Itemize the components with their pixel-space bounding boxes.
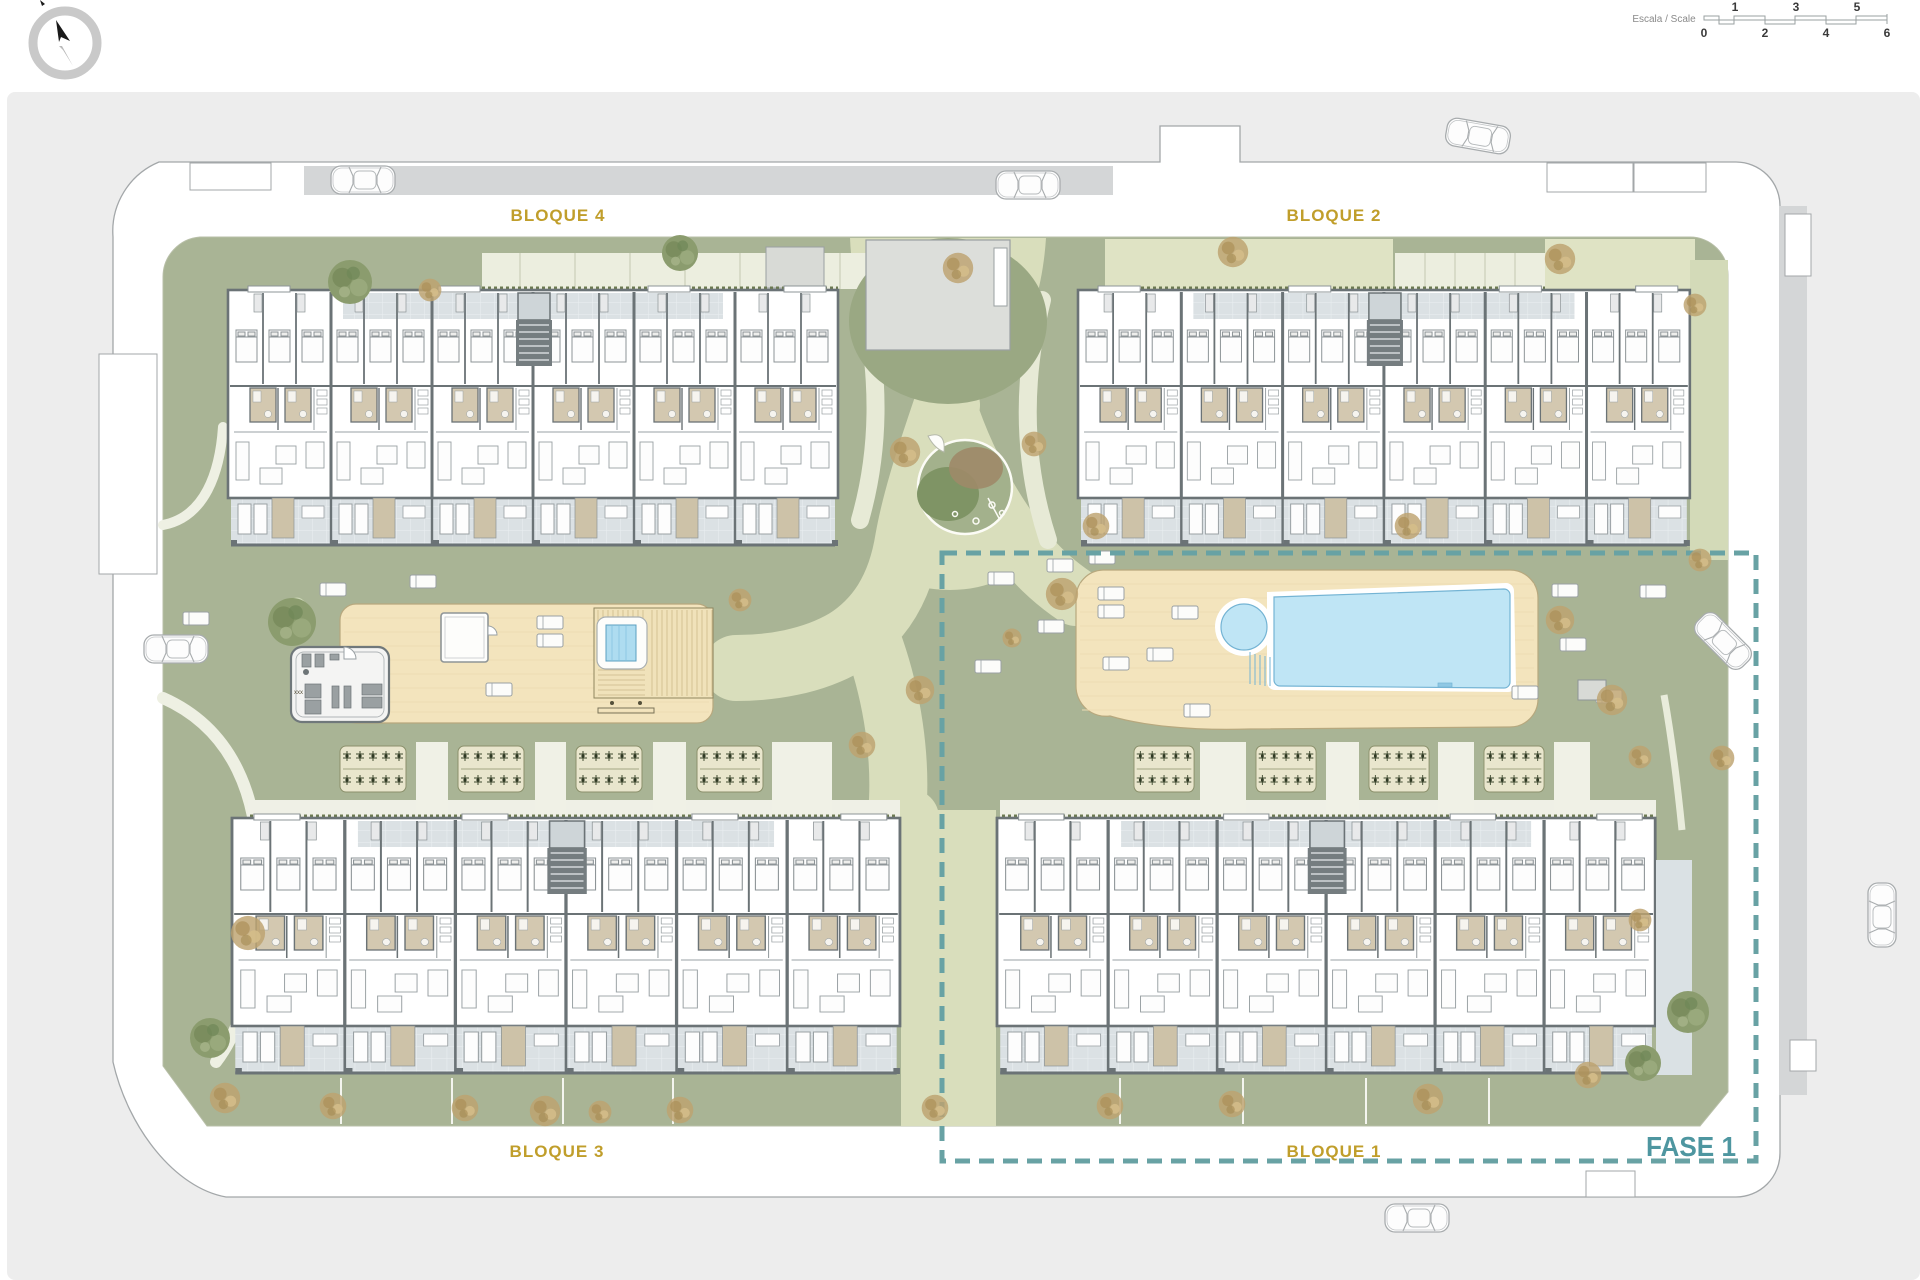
svg-text:0: 0 xyxy=(1701,26,1708,40)
svg-text:BLOQUE 1: BLOQUE 1 xyxy=(1287,1142,1382,1161)
svg-text:4: 4 xyxy=(1823,26,1830,40)
svg-text:FASE 1: FASE 1 xyxy=(1646,1131,1736,1162)
svg-text:3: 3 xyxy=(1793,0,1800,14)
svg-text:6: 6 xyxy=(1884,26,1891,40)
svg-text:1: 1 xyxy=(1732,0,1739,14)
svg-text:2: 2 xyxy=(1762,26,1769,40)
svg-text:BLOQUE 3: BLOQUE 3 xyxy=(510,1142,605,1161)
svg-text:Escala / Scale: Escala / Scale xyxy=(1632,14,1696,25)
svg-text:xxx: xxx xyxy=(294,690,303,696)
svg-text:5: 5 xyxy=(1854,0,1861,14)
svg-text:BLOQUE 2: BLOQUE 2 xyxy=(1287,206,1382,225)
svg-text:BLOQUE 4: BLOQUE 4 xyxy=(511,206,606,225)
